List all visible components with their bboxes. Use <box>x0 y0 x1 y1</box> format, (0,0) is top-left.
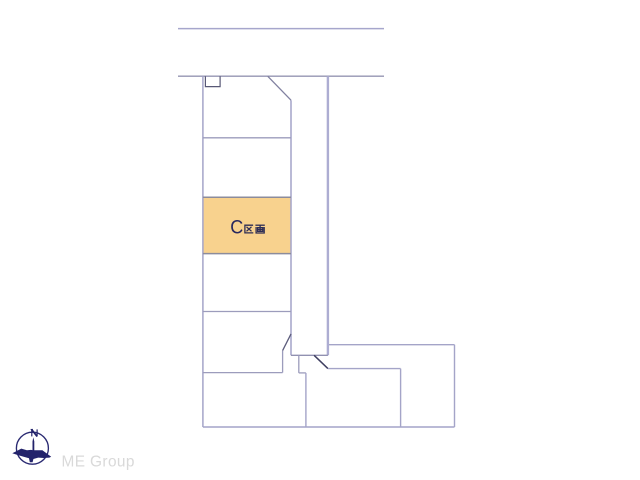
svg-text:ME Group: ME Group <box>62 453 135 470</box>
svg-text:C: C <box>230 216 243 238</box>
